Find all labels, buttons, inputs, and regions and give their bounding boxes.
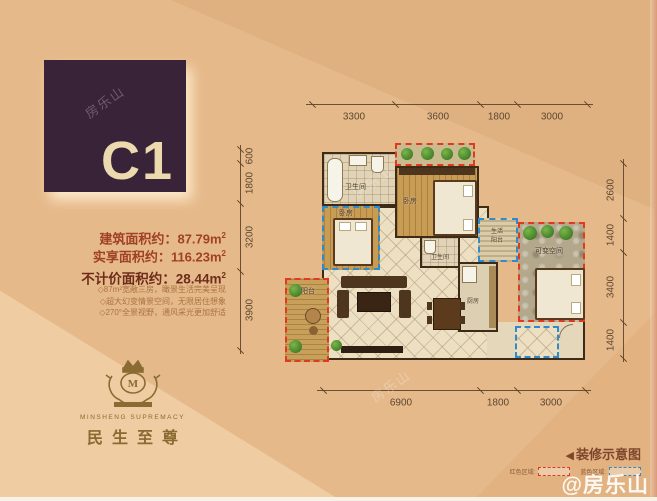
toilet (371, 156, 384, 173)
room-label-kitchen: 厨房 (467, 296, 479, 305)
dim-line-right (623, 159, 624, 362)
room-label-variable-space: 可变空间 (535, 246, 563, 256)
dining-table (433, 298, 461, 330)
feature-list: ◇87m²宽敞三房，瞰景生活完美呈现 ◇超大幻变情景空间，无限居住想象 ◇270… (30, 284, 226, 319)
dim-label: 3400 (606, 276, 617, 298)
pillow (463, 185, 473, 197)
brand-logo: M MINSHENG SUPREMACY 民生至尊 (40, 356, 225, 448)
dim-label: 3200 (245, 226, 256, 248)
unit-badge: C1 (44, 60, 186, 192)
triangle-left-icon: ◀ (566, 450, 574, 462)
bathtub (327, 158, 343, 202)
room-label-bedroom-master: 卧房 (403, 196, 417, 206)
room-label-life-balcony-2: 阳台 (491, 235, 503, 244)
plant-icon (559, 226, 573, 240)
dining-chair (460, 302, 465, 310)
dim-label: 3300 (343, 112, 365, 123)
pillow (571, 274, 581, 286)
plant-icon (421, 147, 434, 160)
brand-name-cn: 民生至尊 (40, 424, 225, 448)
fridge (462, 266, 477, 283)
pillow (463, 219, 473, 231)
dim-label: 3600 (427, 112, 449, 123)
dining-chair (427, 302, 432, 310)
dim-label: 1400 (606, 329, 617, 351)
pillow (571, 302, 581, 314)
dim-label: 3000 (541, 112, 563, 123)
plant-icon (441, 148, 453, 160)
plant-icon (289, 340, 302, 353)
coffee-table (357, 292, 391, 312)
plant-icon (401, 148, 413, 160)
pillow (339, 222, 351, 231)
dim-label: 1800 (488, 112, 510, 123)
tv-cabinet (341, 346, 403, 353)
dim-label: 2600 (606, 179, 617, 201)
sofa (341, 276, 407, 288)
room-label-bathroom-1: 卫生间 (345, 182, 366, 192)
edge-strip-right (650, 0, 657, 501)
plant-icon (541, 225, 554, 238)
watermark-corner: @房乐山 (562, 469, 649, 499)
plant-icon (458, 147, 471, 160)
area-line-built: 建筑面积约：87.79m2 (38, 228, 226, 246)
plant-icon (331, 340, 342, 351)
bed (433, 180, 477, 236)
room-label-bathroom-2: 卫生间 (431, 252, 449, 261)
dim-label: 3000 (540, 398, 562, 409)
area-info: 建筑面积约：87.79m2 实享面积约：116.23m2 不计价面积约：28.4… (38, 228, 226, 286)
dining-chair (427, 316, 432, 324)
feature-item: ◇87m²宽敞三房，瞰景生活完美呈现 (30, 284, 226, 296)
dining-chair (460, 316, 465, 324)
dim-label: 1800 (245, 172, 256, 194)
edge-strip-bottom (0, 497, 657, 501)
area-line-actual: 实享面积约：116.23m2 (38, 246, 226, 264)
room-label-balcony: 阳台 (301, 286, 315, 296)
wardrobe (399, 168, 475, 175)
bed (535, 268, 585, 320)
patio-table (305, 308, 321, 324)
dim-label: 6900 (390, 398, 412, 409)
feature-item: ◇超大幻变情景空间，无限居住想象 (30, 296, 226, 308)
room-label-bedroom-2: 卧房 (339, 208, 353, 218)
unit-label: C1 (101, 134, 186, 192)
dim-line-left (240, 145, 241, 354)
poster: C1 建筑面积约：87.79m2 实享面积约：116.23m2 不计价面积约：2… (0, 0, 657, 501)
feature-item: ◇270°全景视野，通风采光更加舒适 (30, 307, 226, 319)
bed (333, 218, 373, 266)
dim-label: 1800 (487, 398, 509, 409)
crest-icon: M (100, 356, 166, 412)
dim-label: 1400 (606, 224, 617, 246)
room-label-life-balcony-1: 生活 (491, 226, 503, 235)
dim-label: 600 (245, 148, 256, 165)
dim-label: 3900 (245, 299, 256, 321)
brand-name-en: MINSHENG SUPREMACY (40, 414, 225, 421)
kitchen-counter (489, 266, 496, 328)
svg-text:M: M (127, 378, 138, 390)
sofa-side (399, 290, 411, 318)
dim-line-top (306, 104, 593, 105)
pillow (355, 222, 367, 231)
dim-line-bottom (317, 390, 591, 391)
sink (349, 155, 367, 166)
patio-stool (309, 326, 318, 335)
legend-title: ◀装修示意图 (510, 444, 641, 463)
floor-plan: 卫生间 卧房 卧房 阳台 卫生间 (283, 140, 589, 382)
sofa-side (337, 290, 349, 318)
plant-icon (523, 226, 537, 240)
zone-entry (515, 326, 559, 358)
